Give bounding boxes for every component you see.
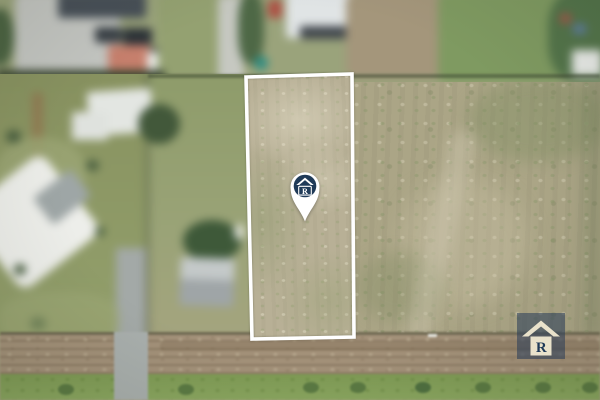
roadside-shrub bbox=[475, 382, 491, 393]
parked-car bbox=[95, 27, 122, 43]
roadside-shrub bbox=[582, 382, 598, 393]
roadside-grass bbox=[0, 374, 600, 400]
blurred-neighborhood-left bbox=[0, 74, 250, 336]
watermark-house-icon: R bbox=[517, 313, 565, 359]
water-tank bbox=[254, 56, 268, 70]
lawn-patch bbox=[158, 0, 218, 78]
dirt-paddock bbox=[346, 0, 450, 78]
field-dark-patch bbox=[468, 78, 600, 162]
roadside-shrub bbox=[535, 382, 551, 393]
shrub bbox=[14, 264, 26, 275]
tree bbox=[238, 0, 264, 64]
tree bbox=[183, 220, 241, 262]
white-shed-roof bbox=[572, 50, 600, 76]
white-shed-roof bbox=[72, 112, 108, 140]
shrub bbox=[86, 160, 99, 171]
fence-line bbox=[148, 74, 600, 78]
road-verge bbox=[0, 332, 600, 378]
parked-car bbox=[123, 28, 152, 45]
aerial-photo: R R bbox=[0, 0, 600, 400]
roadside-shrub bbox=[178, 384, 194, 395]
red-object bbox=[560, 14, 571, 23]
shrub bbox=[6, 130, 21, 143]
roadside-shrub bbox=[350, 382, 366, 393]
red-vehicle bbox=[268, 0, 282, 18]
gravel-crossing bbox=[114, 332, 148, 400]
field-edge-shade bbox=[584, 74, 600, 336]
building-shadow bbox=[300, 26, 352, 39]
blurred-neighborhood-top bbox=[0, 0, 600, 82]
watermark-logo: R bbox=[517, 313, 565, 359]
gravel-driveway bbox=[116, 248, 146, 336]
watermark-roof bbox=[522, 321, 560, 337]
roadside-shrub bbox=[303, 382, 319, 393]
roadside-shrub bbox=[415, 382, 431, 393]
road-strip bbox=[0, 332, 600, 400]
white-object bbox=[234, 224, 244, 240]
farm-shed-roof bbox=[179, 257, 235, 307]
green-paddock bbox=[438, 0, 563, 82]
lawn-light-patch bbox=[0, 292, 120, 336]
blue-object bbox=[573, 24, 586, 34]
shrub bbox=[95, 227, 105, 236]
roadside-shrub bbox=[58, 384, 74, 395]
dark-building-roof bbox=[58, 0, 146, 18]
tree bbox=[138, 104, 180, 144]
white-road-mark bbox=[428, 334, 437, 337]
watermark-letter: R bbox=[536, 340, 547, 356]
